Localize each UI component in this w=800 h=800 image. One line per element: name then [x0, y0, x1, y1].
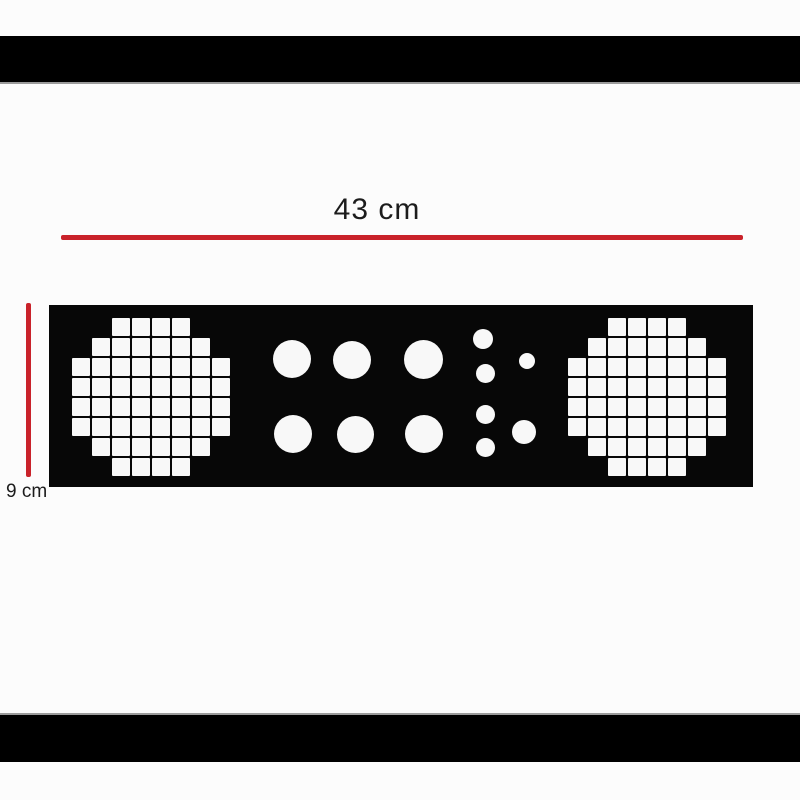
- round-hole: [404, 340, 443, 379]
- round-hole: [476, 364, 495, 383]
- round-hole: [476, 438, 495, 457]
- round-hole: [476, 405, 495, 424]
- round-hole: [519, 353, 535, 369]
- product-image: 43 cm 9 cm: [0, 0, 800, 800]
- width-dimension-label: 43 cm: [277, 193, 477, 227]
- round-hole: [473, 329, 493, 349]
- round-hole-group: [49, 305, 753, 487]
- round-hole: [337, 416, 374, 453]
- bottom-letterbox-band: [0, 713, 800, 762]
- round-hole: [405, 415, 443, 453]
- stencil-panel: [49, 305, 753, 487]
- round-hole: [512, 420, 536, 444]
- height-dimension-label: 9 cm: [6, 481, 47, 503]
- top-letterbox-band: [0, 36, 800, 84]
- height-dimension-line: [26, 303, 31, 477]
- round-hole: [274, 415, 312, 453]
- round-hole: [333, 341, 371, 379]
- width-dimension-line: [61, 235, 743, 240]
- round-hole: [273, 340, 311, 378]
